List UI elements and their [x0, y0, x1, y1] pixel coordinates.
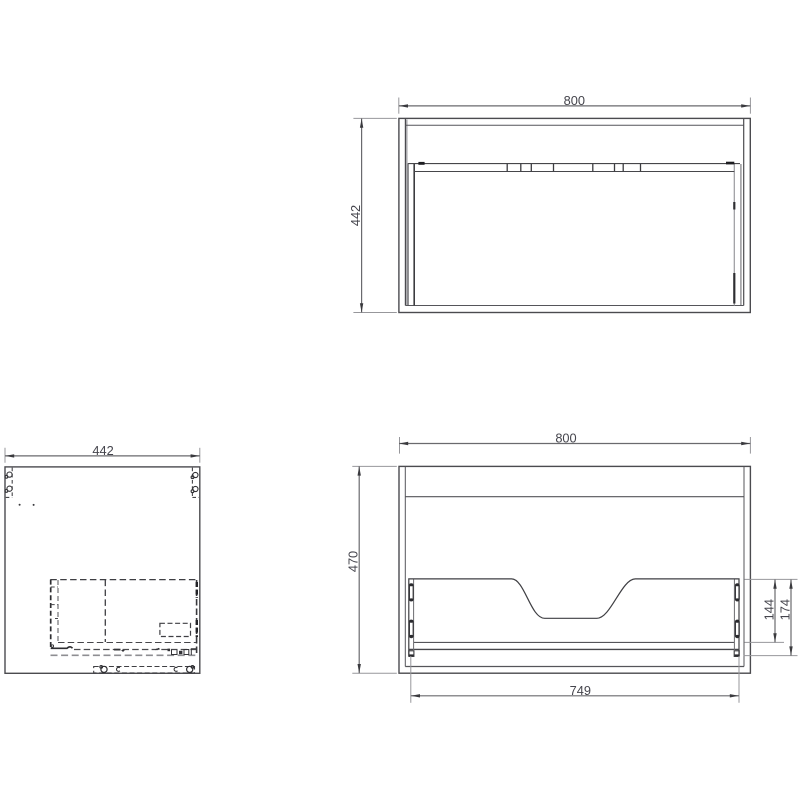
svg-text:144: 144 — [762, 599, 777, 620]
svg-text:749: 749 — [570, 683, 591, 698]
svg-text:442: 442 — [348, 205, 363, 226]
svg-text:800: 800 — [564, 93, 585, 108]
svg-text:800: 800 — [555, 431, 576, 446]
svg-text:442: 442 — [92, 443, 113, 458]
svg-text:470: 470 — [346, 551, 361, 572]
svg-text:174: 174 — [778, 599, 793, 620]
